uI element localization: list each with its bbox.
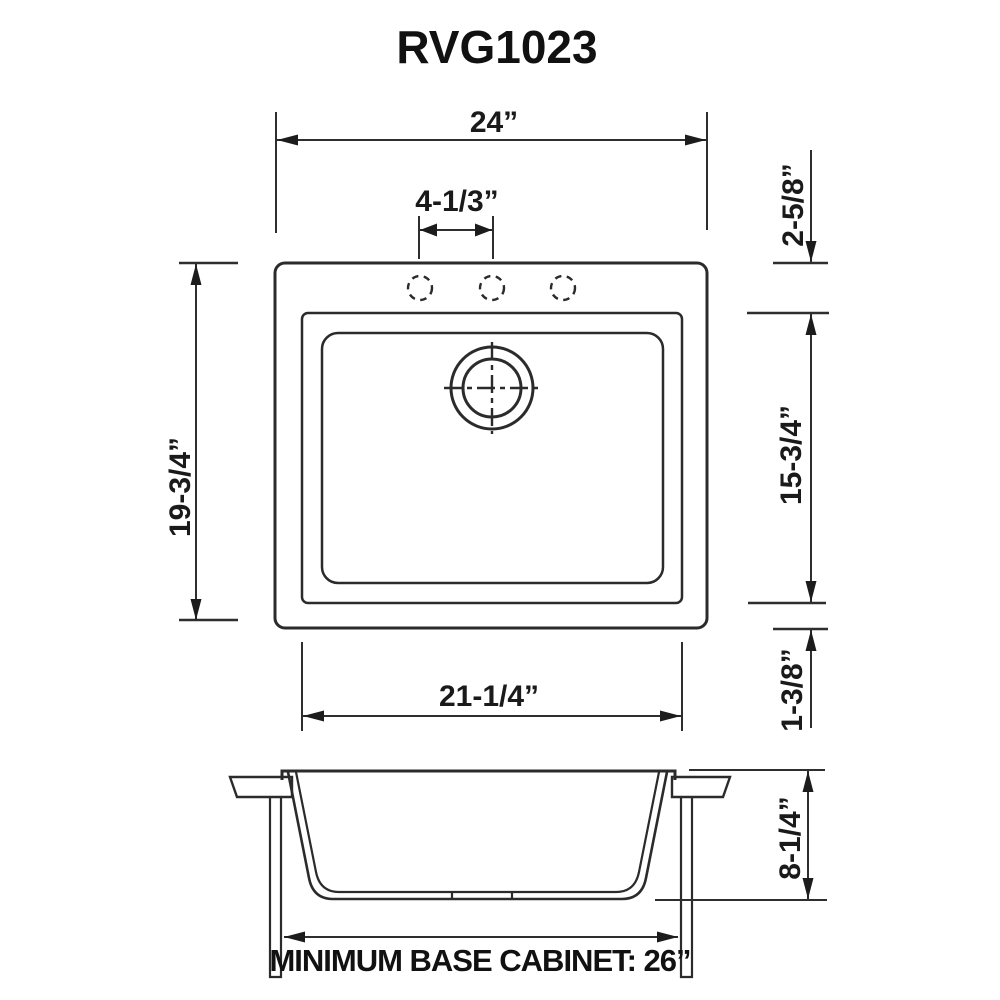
arrowhead-left	[277, 135, 298, 146]
countertop-right	[672, 777, 730, 797]
arrowhead-right	[660, 711, 681, 722]
faucet-hole-2	[480, 276, 504, 300]
dim-faucet-spacing: 4-1/3”	[415, 185, 498, 259]
top-view	[275, 263, 707, 628]
bowl-inner-edge	[322, 333, 663, 583]
dim-label-overall-width: 24”	[470, 106, 518, 139]
dim-label-bowl-depth: 15-3/4”	[775, 405, 808, 505]
arrowhead-right	[657, 932, 678, 943]
technical-drawing: RVG1023 24” 4-1/3” 19-3/	[0, 0, 1000, 1000]
arrowhead-up	[806, 314, 817, 335]
arrowhead-right	[685, 135, 706, 146]
arrowhead-up	[806, 630, 817, 651]
page-title: RVG1023	[396, 21, 597, 73]
dim-bowl-width: 21-1/4”	[302, 642, 682, 731]
sink-spec-sheet: RVG1023 24” 4-1/3” 19-3/	[0, 0, 1000, 1000]
arrowhead-down	[803, 878, 814, 899]
bowl-outer-wall	[288, 772, 667, 899]
dim-label-rim-bottom: 1-3/8”	[776, 648, 809, 731]
dim-rim-top: 2-5/8”	[773, 150, 828, 263]
dim-label-bowl-height: 8-1/4”	[774, 796, 807, 879]
arrowhead-top	[191, 264, 202, 285]
arrowhead-right	[475, 224, 492, 237]
dim-bowl-depth-front-back: 15-3/4”	[747, 313, 829, 603]
arrowhead-left	[284, 932, 305, 943]
dim-base-cabinet: MINIMUM BASE CABINET: 26”	[269, 932, 690, 979]
bowl-inner-wall	[296, 772, 659, 892]
sink-flange	[282, 771, 675, 780]
arrowhead-down	[806, 581, 817, 602]
dim-label-rim-top: 2-5/8”	[777, 163, 810, 246]
dim-label-bowl-width: 21-1/4”	[439, 680, 539, 713]
faucet-hole-1	[408, 276, 432, 300]
dim-overall-depth: 19-3/4”	[164, 263, 238, 620]
dim-rim-bottom: 1-3/8”	[773, 629, 828, 732]
dim-label-faucet-spacing: 4-1/3”	[415, 185, 498, 218]
arrowhead-up	[803, 771, 814, 792]
arrowhead-left	[303, 711, 324, 722]
dim-label-overall-depth: 19-3/4”	[164, 437, 197, 537]
faucet-hole-3	[551, 276, 575, 300]
cabinet-note-label: MINIMUM BASE CABINET: 26”	[269, 943, 690, 978]
sink-outer-edge	[275, 263, 707, 628]
arrowhead-left	[420, 224, 437, 237]
arrowhead-bottom	[191, 599, 202, 620]
